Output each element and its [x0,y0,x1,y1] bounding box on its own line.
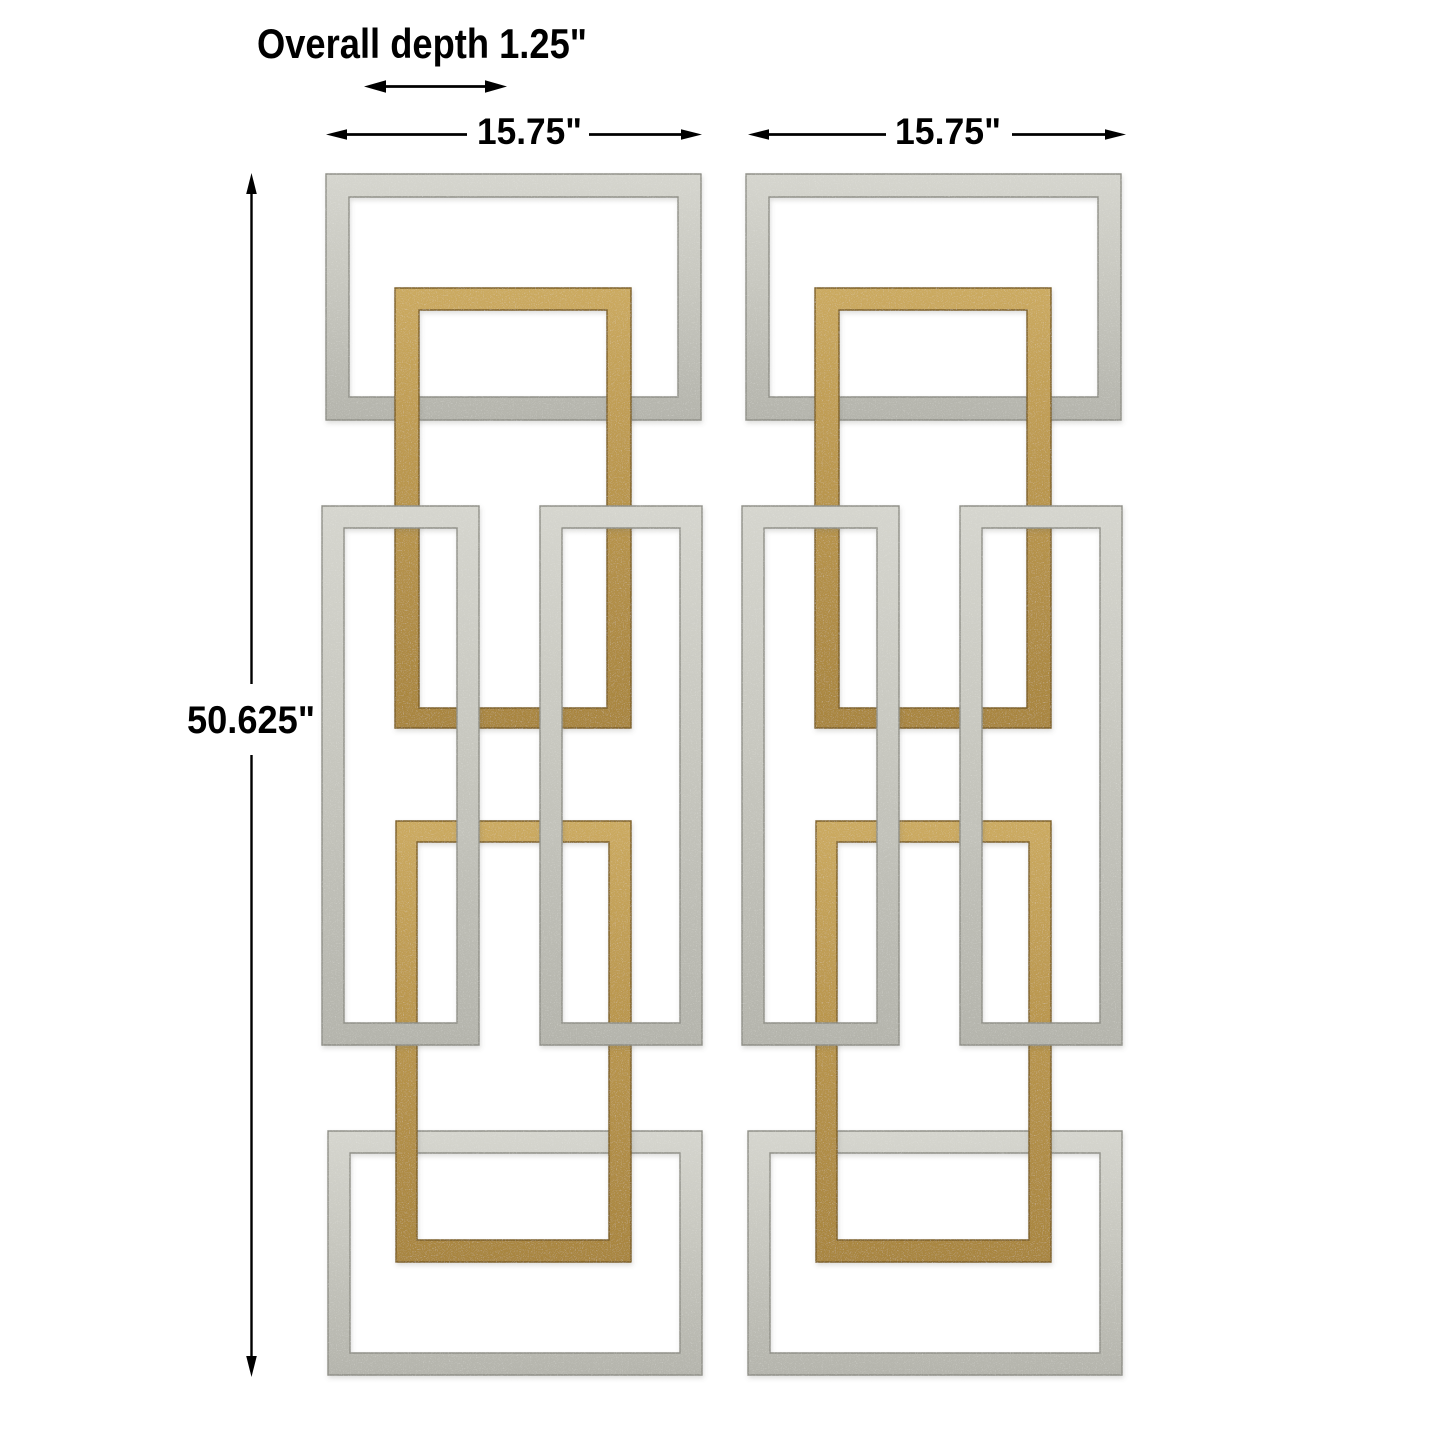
svg-text:15.75": 15.75" [895,111,1001,152]
svg-text:15.75": 15.75" [477,111,582,152]
svg-text:50.625": 50.625" [187,699,315,742]
svg-text:Overall depth 1.25": Overall depth 1.25" [257,20,587,67]
